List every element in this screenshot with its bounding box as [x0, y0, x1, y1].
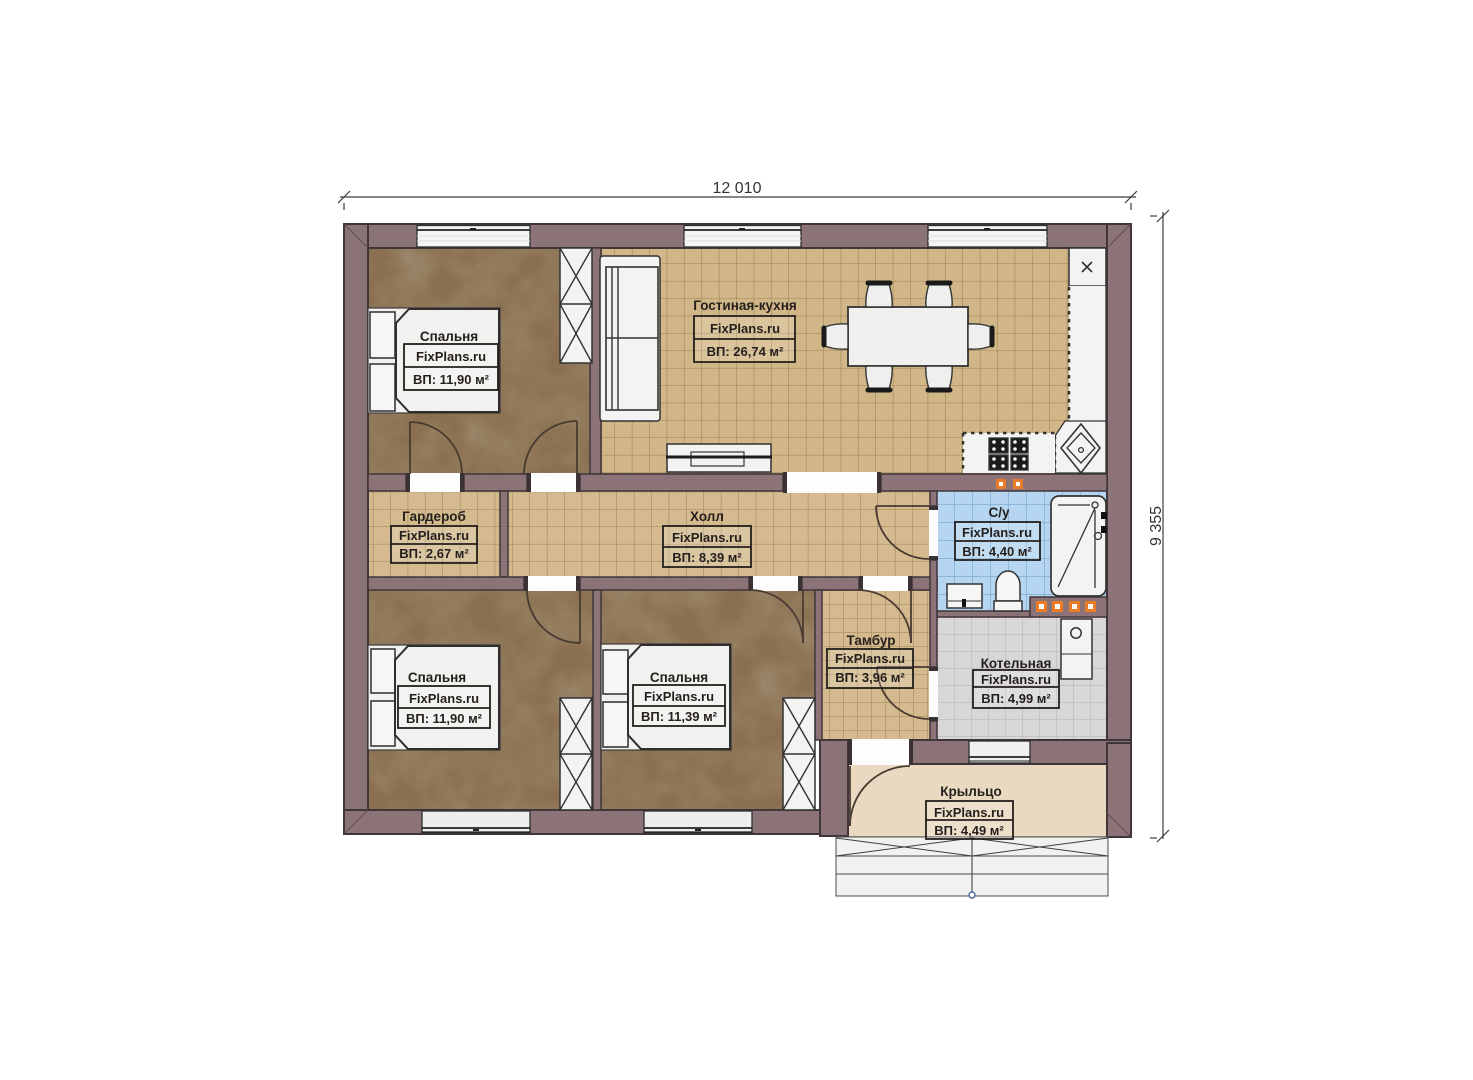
svg-text:Спальня: Спальня [408, 670, 466, 685]
svg-text:FixPlans.ru: FixPlans.ru [409, 691, 479, 706]
svg-text:ВП: 4,40 м²: ВП: 4,40 м² [962, 544, 1032, 559]
svg-text:Тамбур: Тамбур [847, 633, 896, 648]
svg-text:9 355: 9 355 [1148, 506, 1165, 546]
svg-text:ВП: 11,90 м²: ВП: 11,90 м² [413, 372, 490, 387]
svg-text:FixPlans.ru: FixPlans.ru [644, 689, 714, 704]
svg-text:ВП: 2,67 м²: ВП: 2,67 м² [399, 546, 469, 561]
svg-text:С/у: С/у [988, 505, 1010, 520]
svg-text:12 010: 12 010 [713, 180, 762, 197]
svg-text:Спальня: Спальня [420, 329, 478, 344]
svg-text:ВП: 26,74 м²: ВП: 26,74 м² [707, 344, 784, 359]
svg-text:FixPlans.ru: FixPlans.ru [672, 530, 742, 545]
svg-text:Гардероб: Гардероб [402, 509, 466, 524]
svg-text:FixPlans.ru: FixPlans.ru [416, 349, 486, 364]
svg-text:FixPlans.ru: FixPlans.ru [934, 805, 1004, 820]
svg-text:FixPlans.ru: FixPlans.ru [710, 321, 780, 336]
svg-text:FixPlans.ru: FixPlans.ru [835, 651, 905, 666]
svg-text:FixPlans.ru: FixPlans.ru [962, 525, 1032, 540]
svg-text:ВП: 3,96 м²: ВП: 3,96 м² [835, 670, 905, 685]
svg-text:Спальня: Спальня [650, 670, 708, 685]
svg-text:FixPlans.ru: FixPlans.ru [399, 528, 469, 543]
svg-text:Холл: Холл [690, 509, 724, 524]
svg-text:FixPlans.ru: FixPlans.ru [981, 672, 1051, 687]
svg-text:Котельная: Котельная [981, 656, 1052, 671]
svg-text:Гостиная-кухня: Гостиная-кухня [693, 298, 796, 313]
svg-text:Крыльцо: Крыльцо [940, 784, 1001, 799]
svg-text:ВП: 11,39 м²: ВП: 11,39 м² [641, 709, 718, 724]
svg-text:ВП: 8,39 м²: ВП: 8,39 м² [672, 550, 742, 565]
svg-text:ВП: 4,99 м²: ВП: 4,99 м² [981, 691, 1051, 706]
svg-text:ВП: 4,49 м²: ВП: 4,49 м² [934, 823, 1004, 838]
svg-text:ВП: 11,90 м²: ВП: 11,90 м² [406, 711, 483, 726]
